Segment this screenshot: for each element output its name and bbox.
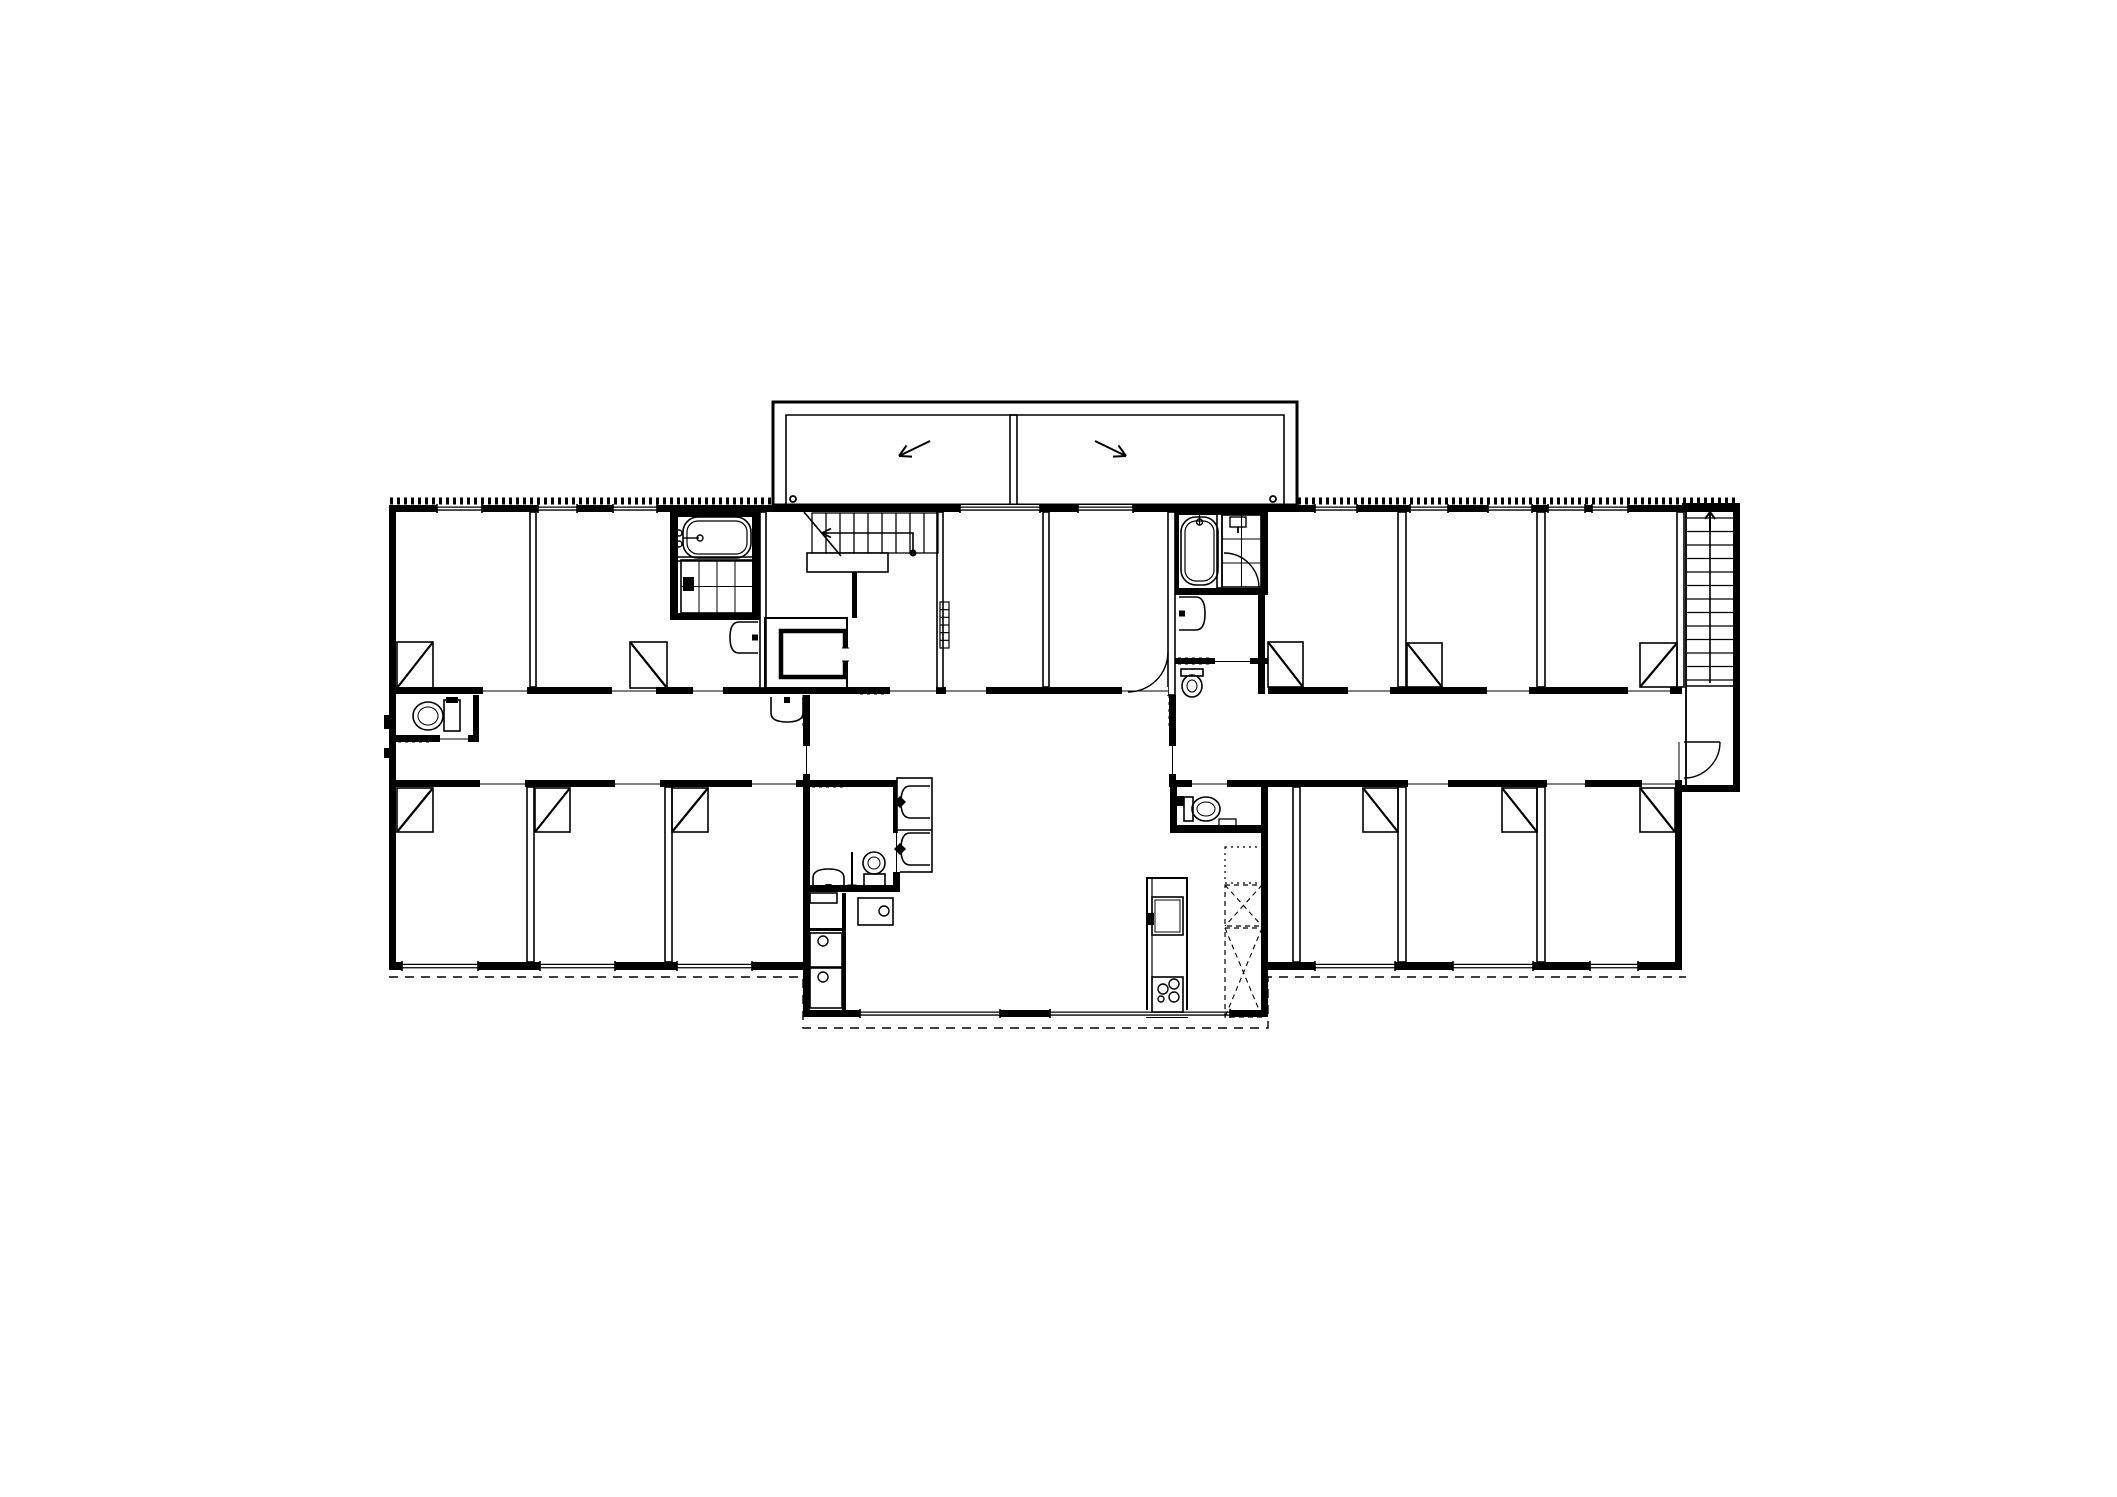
plan-line <box>842 648 849 661</box>
wall-bath-left-south <box>670 613 760 620</box>
wall-washroom-north <box>803 780 900 787</box>
shower-valve-icon <box>683 577 694 591</box>
plan-line <box>1050 1010 1230 1017</box>
plan-line <box>540 962 615 970</box>
wall-bath-left-north <box>670 510 760 517</box>
plan-line <box>1592 505 1628 512</box>
partition-room-i-j <box>665 787 672 962</box>
plan-line <box>1548 505 1585 512</box>
faucet-icon <box>752 635 758 641</box>
wall-corridor-north-left <box>390 687 808 694</box>
partition-room-a-b <box>530 512 536 687</box>
wall-top-exterior <box>390 505 1740 512</box>
wall-left-exterior <box>389 505 396 970</box>
partition-room-c-d <box>1043 512 1049 687</box>
plan-line <box>677 962 752 970</box>
floor-plan-drawing <box>0 0 2117 1497</box>
faucet-icon <box>1147 913 1154 925</box>
plan-line <box>1410 505 1448 512</box>
plan-line <box>402 962 478 970</box>
partition-room-k-l <box>1398 787 1406 962</box>
wall-central-left <box>803 780 810 1017</box>
plan-line <box>1488 505 1532 512</box>
partition-room-f-g <box>1537 512 1545 687</box>
wall-ext-stair-south <box>1682 785 1740 792</box>
wall-nub-west-2 <box>384 748 389 758</box>
plan-line <box>860 1010 1000 1017</box>
partition-room-d-east <box>1168 512 1175 695</box>
plan-line <box>1315 962 1395 970</box>
floor-plan-page <box>0 0 2117 1497</box>
paper-background <box>0 0 2117 1497</box>
wall-nub-west-1 <box>384 715 389 729</box>
faucet-icon <box>784 697 790 703</box>
wall-bath-right-south <box>1172 588 1268 595</box>
partition-room-h-i <box>527 787 534 962</box>
wall-ext-stair-east <box>1733 503 1740 792</box>
plan-line <box>538 505 577 512</box>
wall-bath-right-east <box>1261 508 1268 594</box>
wall-bedroom-e-west <box>1258 660 1265 694</box>
plan-line <box>1113 456 1126 457</box>
plan-line <box>1078 505 1133 512</box>
stair-landing <box>807 553 888 572</box>
wall-laundry-divider-h <box>810 928 846 931</box>
wall-corridor-north-right <box>1268 687 1682 694</box>
elevator-car <box>781 631 849 677</box>
wall-sinkroom-right-east <box>1258 593 1265 660</box>
faucet-icon <box>1179 611 1185 617</box>
partition-shaft-k <box>1293 787 1300 962</box>
faucet-icon <box>826 884 832 890</box>
plan-line <box>1590 962 1638 970</box>
plan-line <box>960 505 1040 512</box>
partition-room-e-f <box>1398 512 1406 687</box>
plan-line <box>1176 796 1184 806</box>
plan-line <box>613 505 657 512</box>
plan-line <box>1315 505 1357 512</box>
wall-wc-left-east <box>473 695 479 742</box>
wall-corridor-south-left <box>390 780 808 787</box>
partition-room-l-m <box>1537 787 1545 962</box>
plan-line <box>437 505 482 512</box>
plan-line <box>910 550 917 557</box>
wall-landing-stub <box>852 572 857 618</box>
wall-bath-left-west <box>670 510 678 620</box>
wall-right-wing-east <box>1675 780 1682 970</box>
kitchen-counter <box>1147 878 1187 1017</box>
plan-line <box>781 631 845 677</box>
plan-line <box>899 456 912 457</box>
plan-line <box>1453 962 1533 970</box>
partition-room-g-east <box>1677 512 1684 687</box>
